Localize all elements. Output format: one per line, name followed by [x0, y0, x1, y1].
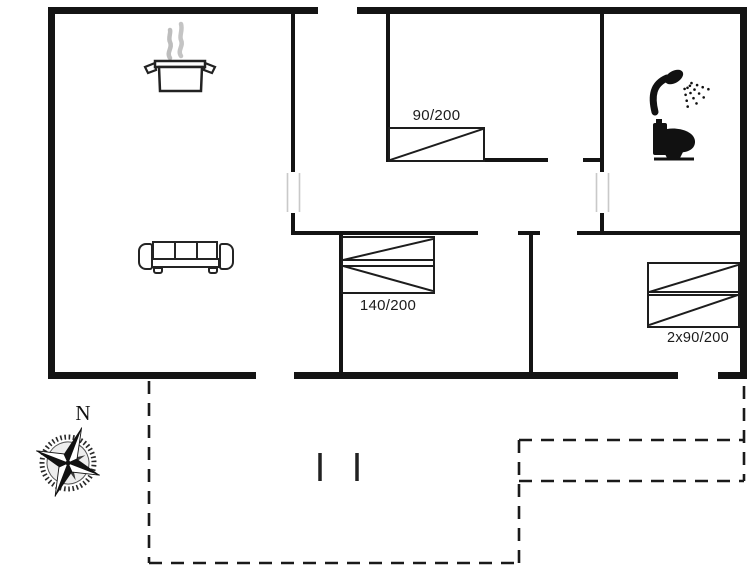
shower-spray-dots	[683, 82, 709, 108]
wall-exterior-bottom-middle	[294, 372, 678, 379]
wall-exterior-left	[48, 7, 55, 379]
steam-icon	[169, 30, 171, 58]
bed-label-2x90-200: 2x90/200	[650, 330, 746, 346]
sofa-cushions	[152, 241, 218, 260]
wall-exterior-top-left	[48, 7, 318, 14]
cooking-pot-icon	[143, 20, 218, 95]
sofa-foot-left	[153, 267, 163, 274]
sofa-foot-right	[208, 267, 218, 274]
terrace-boundary-line	[149, 381, 744, 563]
wall-exterior-top-right	[357, 7, 747, 14]
toilet-icon	[650, 117, 702, 161]
compass-north-label: N	[75, 401, 90, 425]
terrace-step-marks	[320, 453, 357, 481]
sofa-icon	[138, 239, 234, 277]
wall-bathroom-upper	[600, 14, 604, 172]
compass-rose-icon: N	[28, 398, 108, 503]
wall-bedroom-top-bottom-b	[583, 158, 604, 162]
floor-plan: 90/200 140/200 2x90/200	[0, 0, 755, 566]
bed-single-icon	[388, 127, 485, 162]
wall-exterior-bottom-right	[718, 372, 747, 379]
shower-icon	[641, 66, 713, 118]
bed-label-90-200: 90/200	[388, 107, 485, 124]
wall-exterior-bottom-left	[48, 372, 256, 379]
wall-exterior-right	[740, 7, 747, 379]
door-jamb-lines	[288, 173, 609, 212]
sofa-armrest-right	[219, 243, 234, 270]
bed-label-140-200: 140/200	[339, 297, 437, 314]
bed-double-icon	[341, 236, 435, 294]
bed-twin-icon	[647, 262, 740, 328]
wall-livingroom-upper	[291, 14, 295, 172]
wall-corridor-c	[577, 231, 740, 235]
sofa-armrest-left	[138, 243, 153, 270]
wall-bedroom-middle-right	[529, 233, 533, 372]
wall-corridor-a	[293, 231, 478, 235]
